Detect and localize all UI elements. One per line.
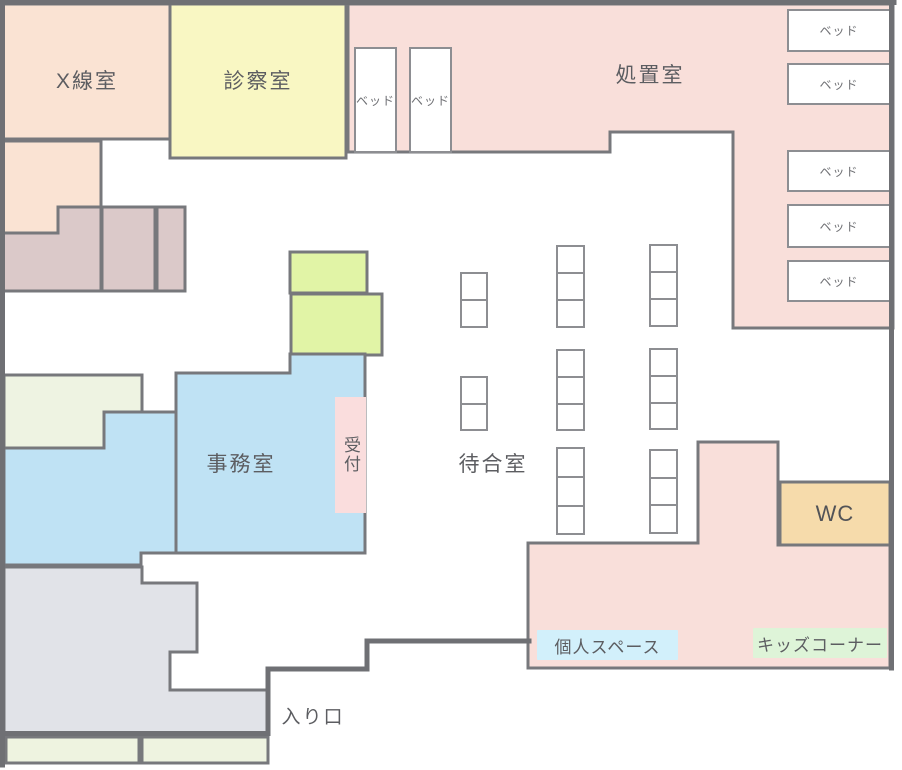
floorplan-canvas [0, 0, 902, 770]
bed [788, 10, 890, 51]
bed [788, 151, 890, 191]
green-box-1 [290, 252, 367, 293]
bed [788, 64, 890, 104]
room-wc-shape [780, 482, 890, 545]
chair-bench [650, 349, 677, 429]
entrance-corridor-shape [4, 567, 268, 733]
entrance-planter-1 [6, 737, 139, 763]
chair-bench [650, 245, 677, 326]
bed [355, 48, 396, 152]
chair-bench [557, 448, 584, 534]
reception-counter-shape [335, 397, 366, 513]
entrance-planter-2 [142, 737, 268, 763]
chair-bench [650, 450, 677, 533]
room-xray-shape [3, 4, 170, 139]
chair-bench [461, 377, 487, 430]
storage-box-b [102, 207, 155, 291]
chair-bench [557, 246, 584, 327]
storage-box-c [157, 207, 185, 291]
clinic-floorplan: X線室 診察室 処置室 事務室 受付 待合室 WC 個人スペース キッズコーナー… [0, 0, 902, 770]
chair-bench [461, 273, 487, 327]
bed [788, 261, 890, 301]
chair-bench [557, 350, 584, 430]
bed [410, 48, 451, 152]
room-exam-shape [170, 4, 346, 158]
green-box-2 [291, 294, 382, 355]
bed [788, 205, 890, 247]
